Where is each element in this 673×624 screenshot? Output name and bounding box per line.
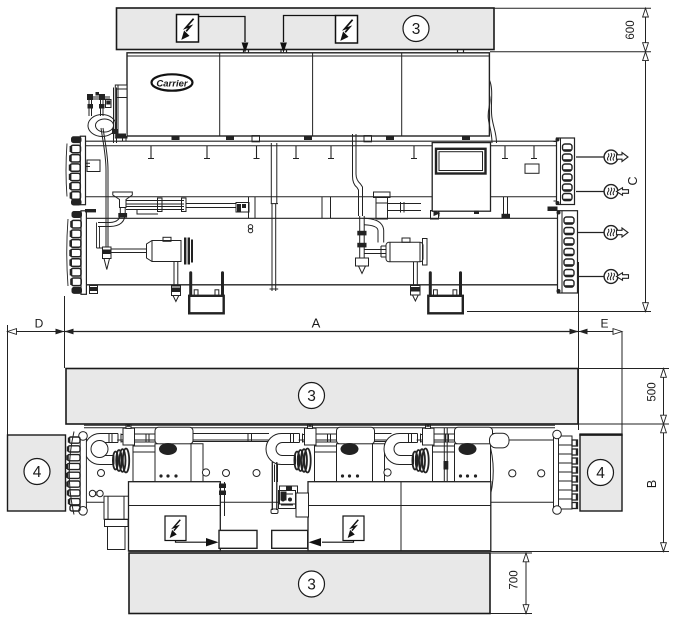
svg-text:C: C: [626, 176, 640, 185]
svg-text:700: 700: [509, 570, 521, 589]
svg-text:3: 3: [412, 21, 421, 38]
svg-text:D: D: [35, 317, 44, 331]
svg-text:4: 4: [33, 464, 42, 481]
svg-text:500: 500: [647, 382, 659, 401]
svg-text:3: 3: [307, 388, 316, 405]
svg-text:B: B: [645, 480, 659, 488]
svg-text:Carrier: Carrier: [156, 79, 188, 90]
svg-text:E: E: [600, 317, 608, 331]
svg-text:4: 4: [596, 465, 605, 482]
svg-text:A: A: [312, 316, 321, 331]
svg-text:600: 600: [625, 20, 637, 39]
svg-text:3: 3: [307, 577, 316, 594]
